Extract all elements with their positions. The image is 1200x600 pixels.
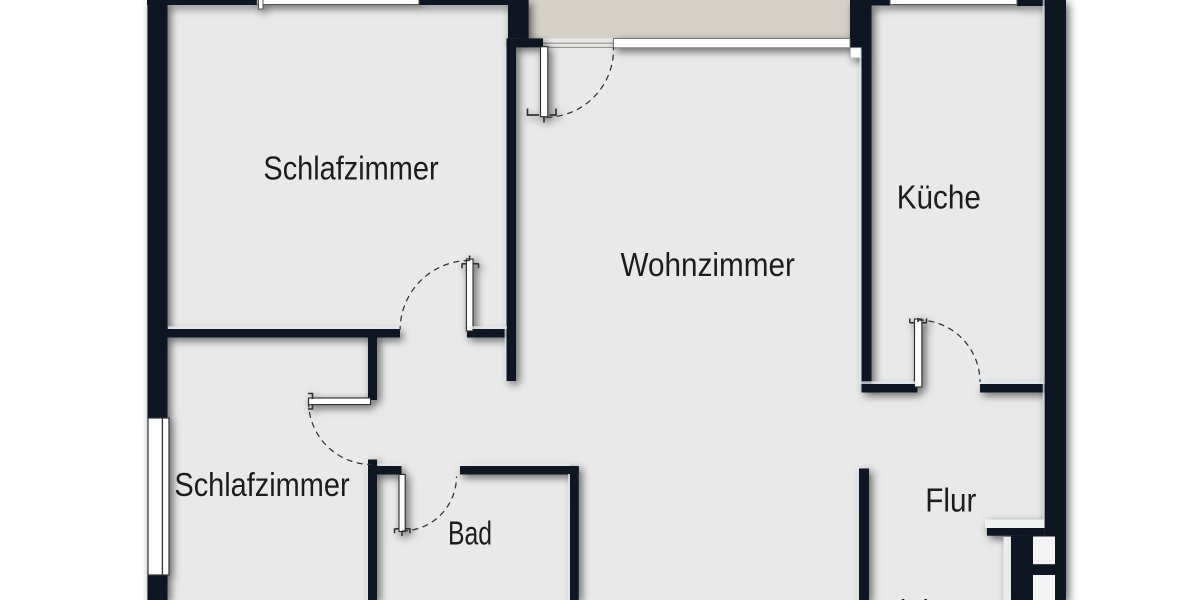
svg-text:Schlafzimmer: Schlafzimmer xyxy=(174,466,349,503)
svg-text:Küche: Küche xyxy=(897,179,981,216)
svg-text:Bad: Bad xyxy=(448,516,492,552)
svg-text:Diele: Diele xyxy=(879,593,945,600)
svg-text:Wohnzimmer: Wohnzimmer xyxy=(621,247,795,284)
svg-text:Schlafzimmer: Schlafzimmer xyxy=(263,150,438,187)
svg-text:Flur: Flur xyxy=(925,482,976,519)
